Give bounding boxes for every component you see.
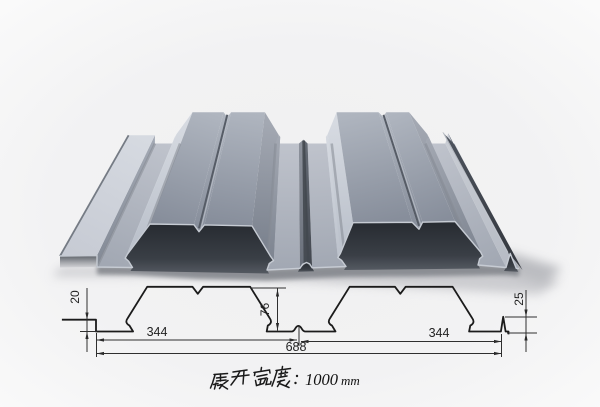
svg-text:1000: 1000 [305, 370, 339, 389]
svg-text:688: 688 [286, 340, 307, 354]
svg-text:344: 344 [147, 325, 168, 339]
svg-text:344: 344 [429, 326, 450, 340]
svg-text:25: 25 [512, 292, 526, 306]
svg-text:mm: mm [341, 373, 360, 388]
svg-text:20: 20 [68, 290, 82, 304]
svg-text:76: 76 [258, 303, 272, 317]
